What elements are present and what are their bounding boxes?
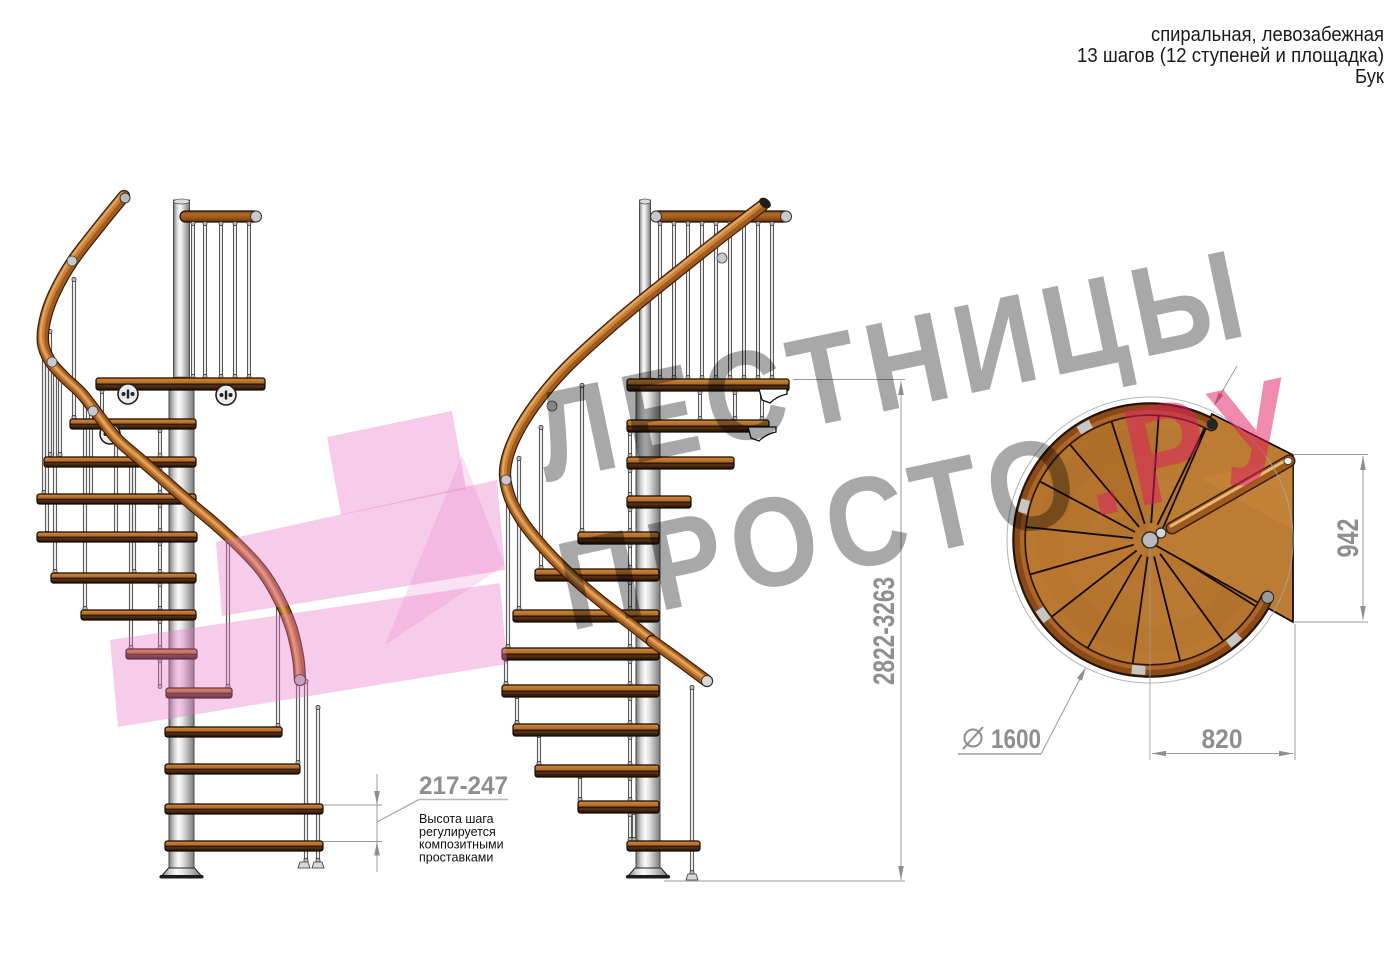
svg-text:820: 820	[1202, 724, 1243, 754]
svg-text:Бук: Бук	[1355, 65, 1385, 88]
svg-text:проставками: проставками	[419, 850, 493, 864]
svg-text:217-247: 217-247	[419, 772, 508, 800]
svg-text:942: 942	[1332, 519, 1365, 558]
svg-text:1600: 1600	[991, 724, 1041, 754]
svg-text:спиральная, левозабежная: спиральная, левозабежная	[1151, 23, 1384, 46]
svg-text:13 шагов (12 ступеней и площад: 13 шагов (12 ступеней и площадка)	[1077, 44, 1384, 67]
